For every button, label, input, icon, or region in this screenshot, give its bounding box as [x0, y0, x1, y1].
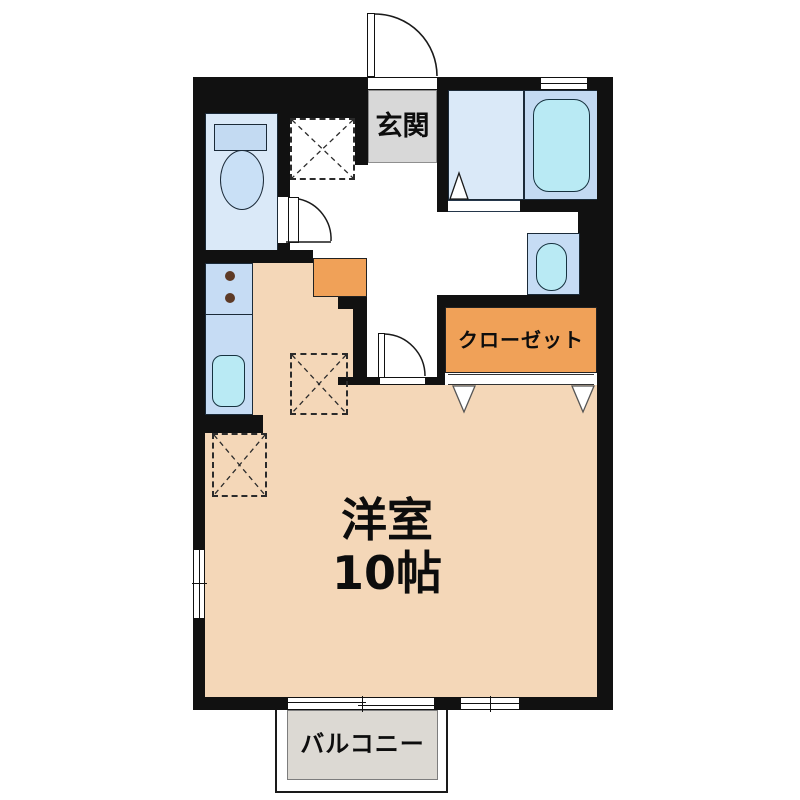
- entrance-left-wall: [355, 118, 368, 165]
- kitchen-top-wall: [193, 250, 313, 263]
- bottom-window-right: [460, 697, 520, 710]
- closet-door-threshold: [448, 374, 594, 385]
- entrance-bath-wall: [437, 90, 448, 212]
- main-room-door-leaf: [378, 333, 385, 378]
- bathtub: [533, 99, 590, 192]
- washing-machine-space: [290, 118, 355, 180]
- top-wall-mid: [437, 77, 540, 90]
- left-window-tick: [192, 583, 207, 584]
- sliding-window-line-upper: [288, 702, 366, 703]
- toilet-right-wall-upper: [278, 113, 290, 197]
- main-room-label: 洋室 10帖: [265, 487, 509, 607]
- balcony-sliding-window: [287, 697, 435, 710]
- balcony-label: バルコニー: [287, 710, 438, 780]
- bathroom-window-line: [541, 83, 587, 84]
- bottom-wall-left: [193, 697, 287, 710]
- bottom-window-tick: [490, 696, 491, 712]
- stove-burner-1: [225, 271, 235, 281]
- bathroom-floor: [448, 90, 524, 200]
- bathroom-door-threshold: [448, 200, 520, 212]
- nook-wall-stub: [353, 309, 367, 377]
- bath-bottom-wall: [520, 200, 613, 212]
- toilet-door-leaf: [288, 197, 299, 243]
- top-wall-left: [193, 77, 368, 90]
- entrance-label: 玄関: [368, 90, 437, 163]
- floor-plan: 玄関 クローゼット 洋室 10帖 バルコニー: [0, 0, 800, 800]
- orange-cabinet: [313, 258, 367, 297]
- bottom-wall-mid: [435, 697, 460, 710]
- toilet-tank: [214, 124, 267, 151]
- stove-burner-2: [225, 293, 235, 303]
- left-wall-upper: [193, 77, 205, 549]
- kitchen-sink: [212, 355, 245, 407]
- entrance-door-arc: [375, 14, 437, 76]
- kitchen-counter-divider: [206, 314, 252, 315]
- toilet-door-arc: [299, 199, 331, 241]
- hall-top-wall: [290, 90, 368, 118]
- equipment-space-lower: [212, 433, 267, 497]
- equipment-space-upper: [290, 353, 348, 415]
- toilet-bowl: [220, 150, 264, 210]
- closet-left-wall: [437, 307, 445, 385]
- kitchen-bottom-wall: [193, 415, 263, 433]
- closet-label: クローゼット: [445, 307, 597, 373]
- entrance-threshold: [368, 77, 437, 90]
- bottom-wall-right: [520, 697, 613, 710]
- kitchen-nook-floor: [253, 263, 353, 697]
- left-window-line: [199, 550, 200, 618]
- toilet-top-wall: [193, 90, 290, 113]
- main-room-name: 洋室: [341, 494, 433, 547]
- closet-top-wall: [437, 295, 613, 307]
- right-wall: [597, 77, 613, 710]
- main-room-door-threshold: [380, 377, 425, 385]
- door-wall-right: [425, 377, 445, 385]
- washroom-right-wall: [578, 212, 613, 295]
- main-room-door-arc: [385, 334, 425, 376]
- washbasin-sink: [536, 243, 567, 291]
- sliding-window-line-lower: [358, 705, 434, 706]
- left-window: [193, 549, 205, 619]
- entrance-door-leaf: [367, 13, 375, 77]
- bathroom-window: [540, 77, 588, 90]
- main-room-size: 10帖: [332, 547, 442, 600]
- nook-wall-horizontal: [338, 297, 367, 309]
